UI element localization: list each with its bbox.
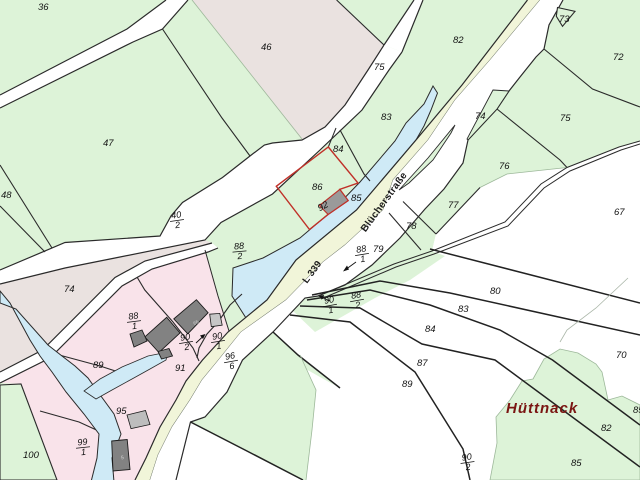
svg-text:46: 46 bbox=[261, 42, 272, 53]
svg-text:100: 100 bbox=[23, 450, 40, 461]
svg-text:85: 85 bbox=[571, 458, 582, 469]
svg-text:40: 40 bbox=[171, 209, 182, 220]
svg-text:67: 67 bbox=[614, 207, 625, 218]
svg-text:1: 1 bbox=[80, 447, 86, 457]
svg-text:85: 85 bbox=[633, 405, 640, 416]
svg-text:96: 96 bbox=[224, 350, 236, 362]
svg-text:88: 88 bbox=[350, 289, 362, 301]
svg-text:90: 90 bbox=[461, 451, 472, 462]
svg-text:82: 82 bbox=[453, 35, 464, 46]
svg-text:83: 83 bbox=[381, 112, 392, 123]
svg-text:91: 91 bbox=[175, 363, 186, 374]
svg-text:84: 84 bbox=[425, 324, 436, 335]
svg-text:76: 76 bbox=[499, 161, 510, 172]
svg-text:95: 95 bbox=[116, 406, 127, 417]
svg-text:82: 82 bbox=[601, 423, 612, 434]
svg-text:77: 77 bbox=[448, 200, 459, 211]
svg-text:88: 88 bbox=[128, 310, 139, 321]
svg-text:74: 74 bbox=[475, 111, 486, 122]
svg-text:89: 89 bbox=[402, 379, 413, 390]
svg-text:88: 88 bbox=[234, 241, 245, 252]
svg-text:83: 83 bbox=[458, 304, 469, 315]
svg-text:72: 72 bbox=[613, 52, 624, 63]
svg-text:75: 75 bbox=[560, 113, 571, 124]
svg-text:74: 74 bbox=[64, 284, 75, 295]
svg-text:73: 73 bbox=[559, 14, 570, 25]
svg-text:78: 78 bbox=[406, 221, 417, 232]
svg-text:99: 99 bbox=[77, 437, 88, 448]
svg-text:84: 84 bbox=[333, 144, 344, 155]
svg-text:36: 36 bbox=[38, 2, 49, 13]
svg-text:88: 88 bbox=[355, 243, 366, 254]
svg-text:Hüttnack: Hüttnack bbox=[506, 400, 578, 417]
svg-text:89: 89 bbox=[93, 360, 104, 371]
svg-text:80: 80 bbox=[490, 286, 501, 297]
svg-text:48: 48 bbox=[1, 190, 12, 201]
svg-text:90: 90 bbox=[211, 330, 222, 341]
svg-text:2: 2 bbox=[236, 251, 243, 261]
svg-text:79: 79 bbox=[373, 244, 384, 255]
svg-text:47: 47 bbox=[103, 138, 114, 149]
svg-text:70: 70 bbox=[616, 350, 627, 361]
svg-text:75: 75 bbox=[374, 62, 385, 73]
svg-text:86: 86 bbox=[312, 182, 323, 193]
svg-text:87: 87 bbox=[417, 358, 428, 369]
svg-text:85: 85 bbox=[351, 193, 362, 204]
svg-text:90: 90 bbox=[179, 331, 190, 342]
